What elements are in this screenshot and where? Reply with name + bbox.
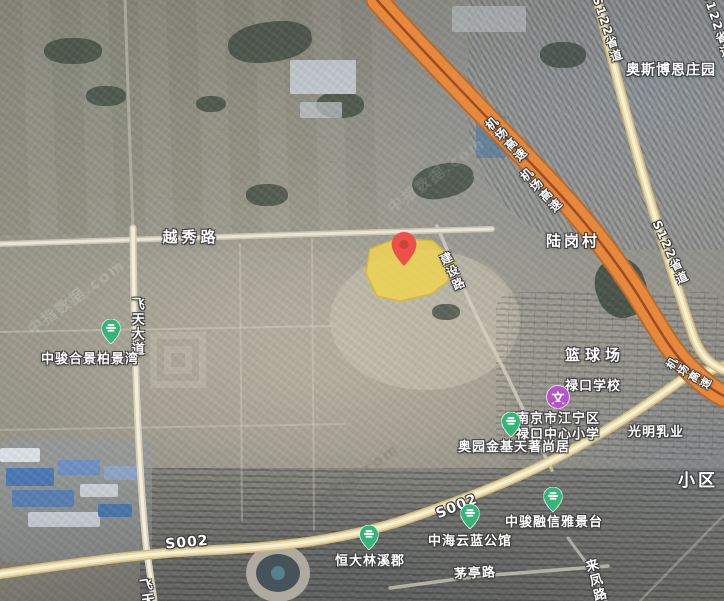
place-label-primary-school: 南京市江宁区 禄口中心小学 (516, 411, 600, 442)
parcel-marker-pin[interactable] (392, 232, 417, 270)
watermark-logo (150, 332, 206, 388)
road-label-yuexiu: 越秀路 (162, 228, 219, 246)
road-label-feitian-avenue: 飞天大道 (128, 297, 144, 357)
satellite-map-canvas[interactable]: 文 越秀路 陆岗村 奥斯博恩庄园 飞天大道 飞天大道 篮球场 禄口学校 南京市江… (0, 0, 724, 601)
poi-pin-zhongjun-rongxin[interactable] (544, 487, 563, 516)
parcel-layer (0, 0, 724, 601)
place-label-osborn-manor: 奥斯博恩庄园 (626, 63, 716, 80)
poi-label-zhonghai-yunlan: 中海云蓝公馆 (428, 534, 512, 550)
place-label-lukou-school: 禄口学校 (565, 379, 621, 395)
school-pin-glyph: 文 (551, 388, 564, 407)
place-label-basketball-court: 篮球场 (565, 346, 625, 364)
poi-label-zhongjun-hejing: 中骏合景柏景湾 (41, 352, 139, 368)
school-pin[interactable]: 文 (546, 385, 570, 409)
place-label-lugang-village: 陆岗村 (546, 232, 600, 250)
poi-label-zhongjun-rongxin: 中骏融信雅景台 (505, 515, 603, 531)
poi-pin-zhonghai-yunlan[interactable] (461, 504, 480, 533)
road-label-maoting: 茅亭路 (454, 565, 497, 583)
poi-pin-hengda-linxi[interactable] (360, 525, 379, 554)
place-label-residential-area: 小区 (678, 471, 718, 491)
poi-label-hengda-linxi: 恒大林溪郡 (335, 554, 405, 570)
poi-pin-zhongjun-hejing[interactable] (102, 319, 121, 348)
poi-pin-aoyuan-jinji[interactable] (502, 412, 521, 441)
poi-label-aoyuan-jinji: 奥园金基天著尚居 (458, 440, 570, 456)
place-label-guangming-dairy: 光明乳业 (628, 425, 684, 441)
